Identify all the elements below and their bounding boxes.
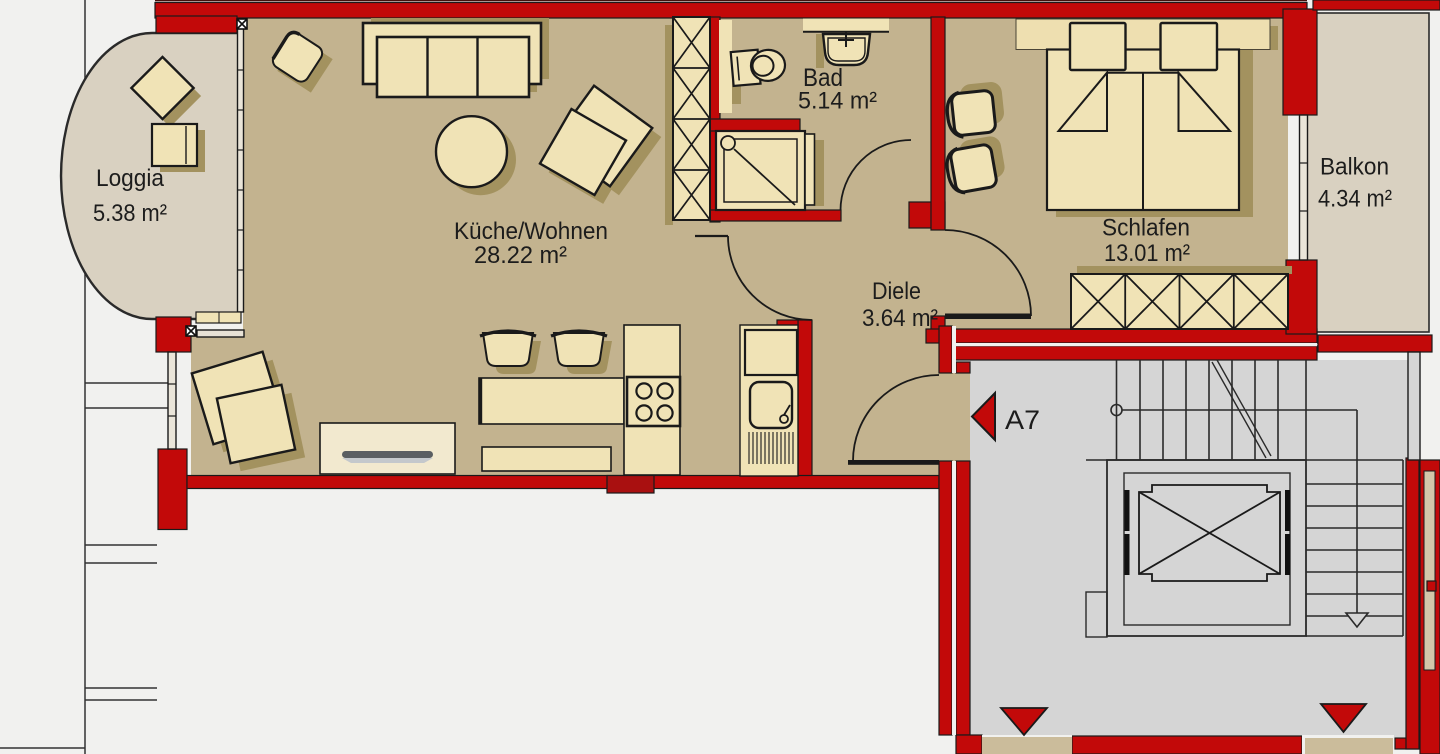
svg-text:Loggia: Loggia <box>96 165 165 192</box>
svg-text:13.01 m²: 13.01 m² <box>1104 240 1190 267</box>
svg-text:28.22 m²: 28.22 m² <box>474 242 567 269</box>
svg-text:4.34 m²: 4.34 m² <box>1318 186 1392 213</box>
svg-text:Schlafen: Schlafen <box>1102 215 1190 242</box>
svg-text:Diele: Diele <box>872 278 921 305</box>
svg-text:5.38 m²: 5.38 m² <box>93 200 167 227</box>
svg-text:3.64 m²: 3.64 m² <box>862 305 938 332</box>
svg-text:5.14 m²: 5.14 m² <box>798 88 877 115</box>
svg-text:Küche/Wohnen: Küche/Wohnen <box>454 218 608 245</box>
svg-text:A7: A7 <box>1005 405 1040 435</box>
svg-text:Balkon: Balkon <box>1320 154 1389 181</box>
